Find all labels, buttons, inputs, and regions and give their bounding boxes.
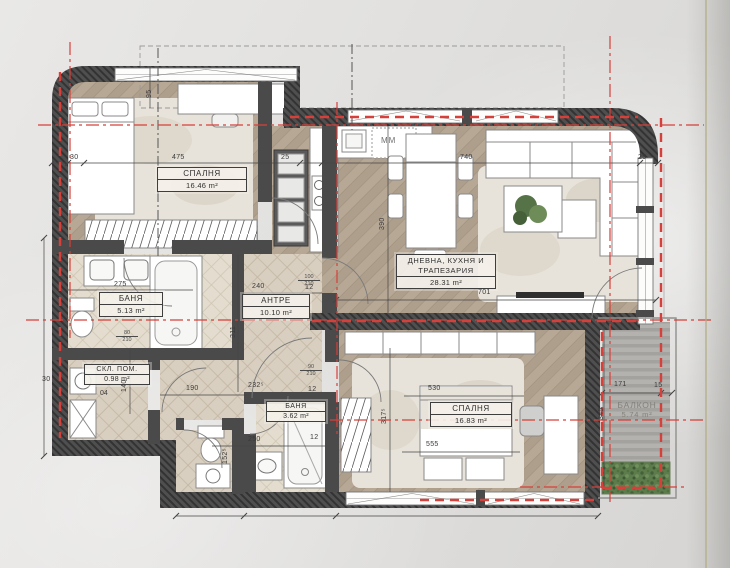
microwave-label: MM bbox=[381, 136, 396, 145]
dim-storage-width: 190 bbox=[186, 385, 199, 392]
room-area: 16.83 m² bbox=[431, 415, 511, 426]
room-name: БАНЯ bbox=[100, 293, 162, 305]
dim-bath1-width: 275 bbox=[114, 281, 127, 288]
dim-wall-12c: 12 bbox=[310, 434, 318, 441]
room-area: 5.74 m² bbox=[604, 410, 670, 419]
dim-hall-depth: 311 bbox=[230, 326, 237, 338]
room-name: БАЛКОН bbox=[604, 400, 670, 410]
pillow bbox=[72, 102, 98, 116]
room-area: 3.62 m² bbox=[267, 412, 325, 421]
page-edge-shading bbox=[686, 0, 730, 568]
room-label-bath2: БАНЯ 3.62 m² bbox=[266, 401, 326, 422]
toilet bbox=[198, 426, 224, 438]
chair bbox=[388, 156, 403, 180]
dim-wall-12b: 12 bbox=[308, 386, 316, 393]
room-label-storage: СКЛ. ПОМ. 0.98 m² bbox=[84, 364, 150, 385]
room-area: 16.46 m² bbox=[158, 180, 246, 191]
dim-pier-a: 25 bbox=[281, 154, 289, 161]
room-name: СПАЛНЯ bbox=[158, 168, 246, 180]
storage-tag: 04 bbox=[100, 390, 108, 397]
room-label-living: ДНЕВНА, КУХНЯ И ТРАПЕЗАРИЯ 28.31 m² bbox=[396, 254, 496, 289]
dim-window-offset: 95 bbox=[146, 90, 153, 98]
door-size-hall-bedroom2: 90 210 bbox=[300, 364, 322, 378]
desk bbox=[178, 84, 294, 114]
dim-hall-bottom: 232⁵ bbox=[248, 382, 264, 389]
room-name: СПАЛНЯ bbox=[431, 403, 511, 415]
room-name-2: ТРАПЕЗАРИЯ bbox=[397, 265, 495, 277]
dim-hall-width: 240 bbox=[252, 283, 265, 290]
dim-living-width: 740 bbox=[460, 154, 473, 161]
dim-balcony-edge: 15 bbox=[654, 382, 662, 389]
dim-living-span: 701 bbox=[478, 289, 491, 296]
room-label-bath1: БАНЯ 5.13 m² bbox=[99, 292, 163, 317]
wardrobe-top bbox=[345, 332, 535, 354]
bed-bench bbox=[424, 458, 462, 480]
dim-bed-width: 530 bbox=[428, 385, 441, 392]
corner-sink bbox=[196, 464, 230, 488]
room-name: АНТРЕ bbox=[243, 295, 309, 307]
room-name: СКЛ. ПОМ. bbox=[85, 365, 149, 375]
tv-unit bbox=[497, 296, 605, 314]
dim-kitchen-depth: 390 bbox=[379, 217, 386, 230]
toilet bbox=[70, 298, 94, 311]
dim-left-wall: 30 bbox=[70, 154, 78, 161]
door-size-hall-living: 100 210 bbox=[298, 274, 320, 288]
dim-left-wall-b: 30 bbox=[42, 376, 50, 383]
room-area: 0.98 m² bbox=[85, 375, 149, 384]
chair bbox=[520, 406, 544, 436]
room-area: 28.31 m² bbox=[397, 277, 495, 288]
room-label-bedroom1: СПАЛНЯ 16.46 m² bbox=[157, 167, 247, 192]
dim-balcony-depth: 345 bbox=[598, 407, 605, 420]
tv bbox=[516, 292, 584, 298]
floor-plan-drawing bbox=[0, 0, 730, 568]
bed-bench bbox=[466, 458, 504, 480]
room-label-balcony: БАЛКОН 5.74 m² bbox=[604, 400, 670, 419]
room-name: ДНЕВНА, КУХНЯ И bbox=[397, 255, 495, 265]
dim-bath2-width: 250 bbox=[248, 436, 261, 443]
room-label-hall: АНТРЕ 10.10 m² bbox=[242, 294, 310, 319]
desk-2 bbox=[544, 396, 578, 474]
pillow bbox=[102, 102, 128, 116]
chair bbox=[388, 194, 403, 218]
page-edge-line bbox=[705, 0, 707, 568]
room-area: 10.10 m² bbox=[243, 307, 309, 318]
dim-bath2-depth: 152⁵ bbox=[222, 448, 229, 464]
door-size-bath1: 80 210 bbox=[116, 330, 138, 344]
coffee-table bbox=[558, 200, 596, 238]
dim-bedroom2-depth: 317⁵ bbox=[381, 408, 388, 424]
room-area: 5.13 m² bbox=[100, 305, 162, 316]
door-height: 210 bbox=[116, 336, 138, 343]
dim-balcony-width: 171 bbox=[614, 381, 627, 388]
floor-plan: СПАЛНЯ 16.46 m² ДНЕВНА, КУХНЯ И ТРАПЕЗАР… bbox=[0, 0, 730, 568]
dining-table bbox=[406, 134, 456, 248]
dim-bedroom1-width: 475 bbox=[172, 154, 185, 161]
dim-bed-width2: 555 bbox=[426, 441, 439, 448]
door-height: 210 bbox=[298, 280, 320, 287]
dim-storage-depth: 140 bbox=[121, 379, 128, 392]
door-height: 210 bbox=[300, 370, 322, 377]
dim-pier-b: 25 bbox=[638, 154, 646, 161]
chair bbox=[458, 194, 473, 218]
room-label-bedroom2: СПАЛНЯ 16.83 m² bbox=[430, 402, 512, 427]
room-name: БАНЯ bbox=[267, 402, 325, 412]
